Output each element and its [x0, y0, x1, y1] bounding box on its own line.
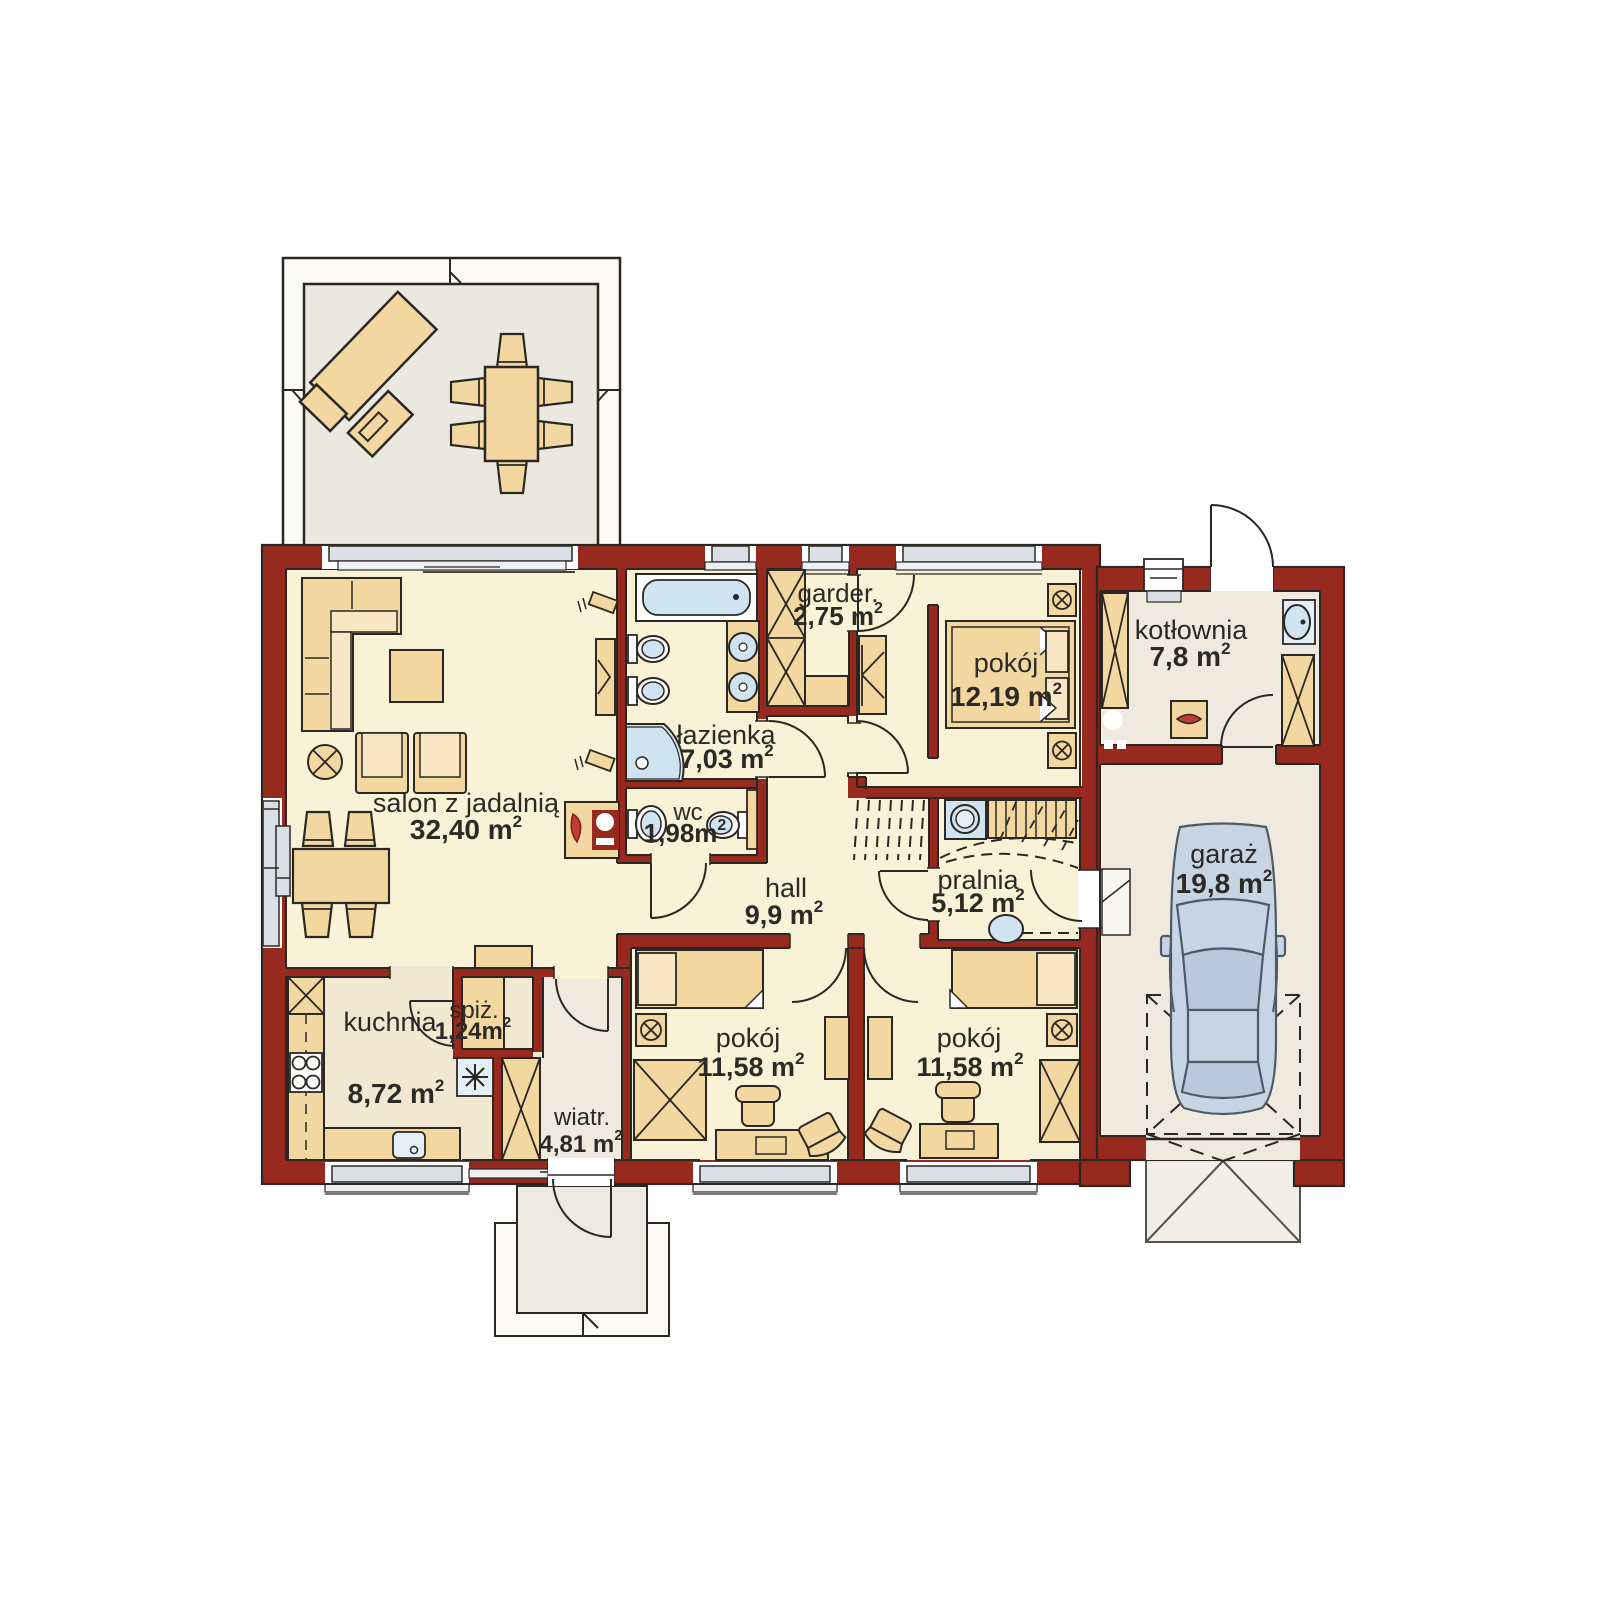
svg-text:garaż: garaż	[1190, 839, 1258, 869]
svg-text:19,8 m2: 19,8 m2	[1176, 866, 1273, 899]
svg-text:4,81 m2: 4,81 m2	[539, 1127, 622, 1158]
svg-text:7,8 m2: 7,8 m2	[1149, 639, 1230, 672]
svg-text:7,03 m2: 7,03 m2	[680, 741, 774, 774]
svg-text:2,75 m2: 2,75 m2	[793, 600, 883, 631]
svg-text:1,24m2: 1,24m2	[435, 1014, 511, 1045]
svg-text:11,58 m2: 11,58 m2	[697, 1049, 804, 1082]
svg-text:wiatr.: wiatr.	[553, 1104, 610, 1131]
svg-text:1,98m2: 1,98m2	[644, 817, 727, 848]
svg-text:32,40 m2: 32,40 m2	[410, 812, 522, 845]
svg-text:hall: hall	[765, 873, 807, 903]
svg-text:8,72 m2: 8,72 m2	[348, 1076, 445, 1109]
svg-text:pokój: pokój	[716, 1023, 781, 1053]
svg-text:kuchnia: kuchnia	[343, 1007, 437, 1037]
svg-text:pokój: pokój	[937, 1023, 1002, 1053]
svg-text:pokój: pokój	[974, 648, 1039, 678]
svg-text:5,12 m2: 5,12 m2	[931, 885, 1025, 918]
svg-text:11,58 m2: 11,58 m2	[916, 1049, 1023, 1082]
svg-text:9,9 m2: 9,9 m2	[745, 897, 824, 930]
svg-text:12,19 m2: 12,19 m2	[950, 679, 1062, 712]
